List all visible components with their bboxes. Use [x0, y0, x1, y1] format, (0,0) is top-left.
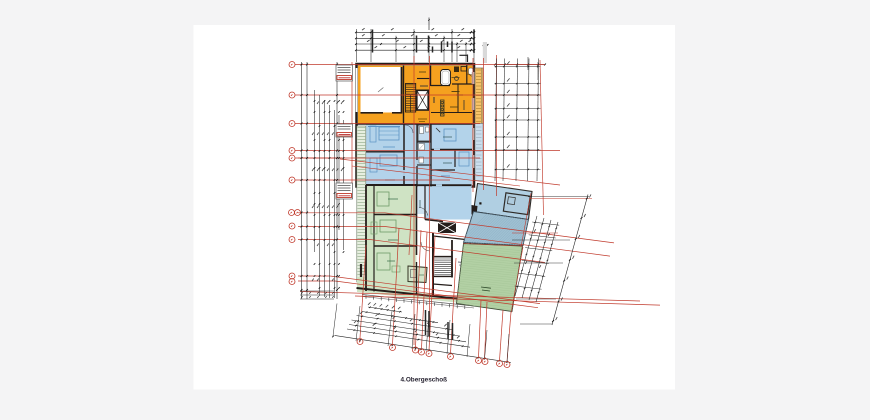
svg-text:4.Obergeschoß: 4.Obergeschoß [401, 377, 448, 384]
